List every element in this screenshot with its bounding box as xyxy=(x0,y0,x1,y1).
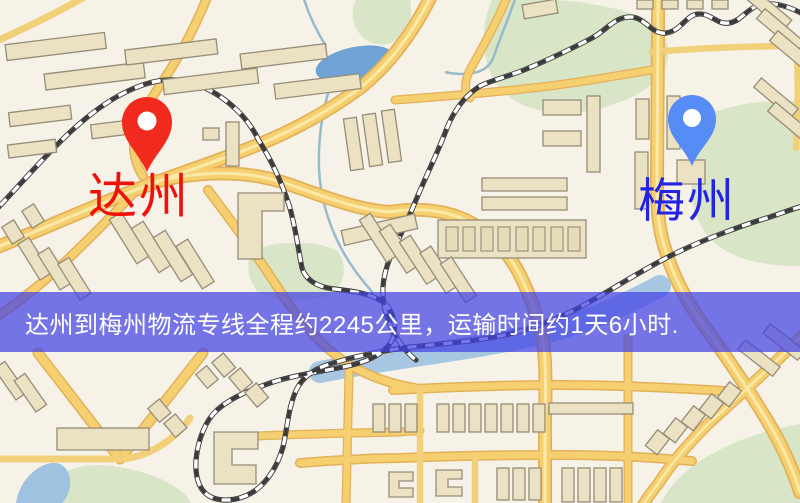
route-info-text: 达州到梅州物流专线全程约2245公里，运输时间约1天6小时. xyxy=(25,305,679,340)
origin-pin-hole xyxy=(138,112,157,131)
map-canvas xyxy=(0,0,800,503)
destination-pin-hole xyxy=(683,109,701,127)
route-info-banner: 达州到梅州物流专线全程约2245公里，运输时间约1天6小时. xyxy=(0,292,800,352)
map-screenshot: 达州 梅州 达州到梅州物流专线全程约2245公里，运输时间约1天6小时. xyxy=(0,0,800,503)
origin-city-label: 达州 xyxy=(88,173,190,222)
destination-city-label: 梅州 xyxy=(638,177,736,224)
